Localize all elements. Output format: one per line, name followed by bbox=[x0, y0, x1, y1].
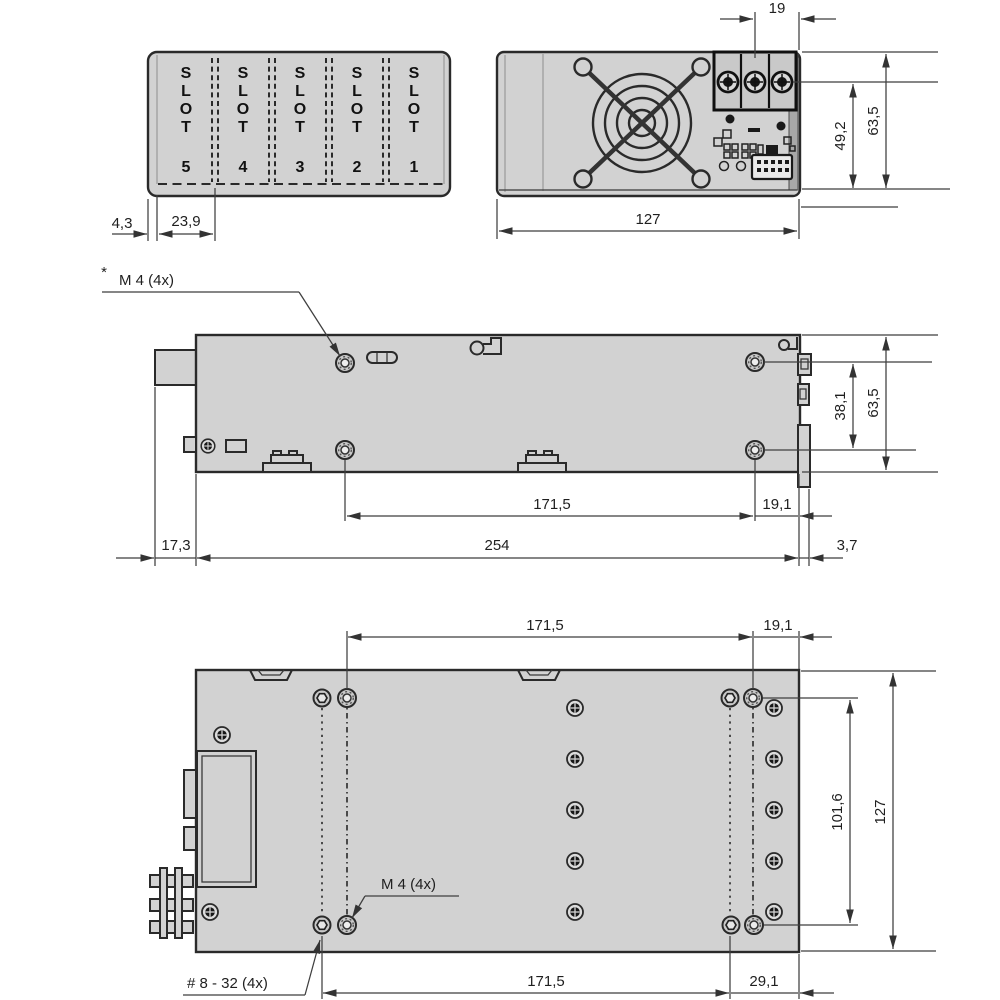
screw-icon bbox=[201, 439, 215, 453]
screw-icon bbox=[766, 751, 782, 767]
mounting-hole-hex bbox=[723, 917, 740, 934]
note-asterisk: * bbox=[101, 264, 107, 281]
terminal-screw-icon bbox=[772, 72, 792, 92]
screw-icon bbox=[567, 904, 583, 920]
screw-icon bbox=[567, 700, 583, 716]
slot-letter: L bbox=[238, 83, 248, 100]
slot-letter: T bbox=[409, 119, 419, 136]
mounting-hole-hex bbox=[314, 690, 331, 707]
mounting-foot bbox=[263, 451, 311, 472]
dim-hole-span: 171,5 bbox=[533, 496, 571, 513]
screw-icon bbox=[214, 727, 230, 743]
slot-letter: O bbox=[180, 101, 192, 118]
view-side: * M 4 (4x) 38,1 63,5 171,5 19,1 bbox=[101, 264, 938, 566]
dim-terminal-pitch: 19 bbox=[769, 0, 786, 17]
mounting-hole-m4 bbox=[336, 441, 354, 459]
screw-icon bbox=[567, 751, 583, 767]
fan-corner-ring bbox=[693, 59, 710, 76]
signal-connector-icon bbox=[752, 155, 792, 179]
dim-screw-height: 49,2 bbox=[832, 121, 849, 150]
note-m4-side: M 4 (4x) bbox=[119, 272, 174, 289]
mounting-hole-m4 bbox=[338, 689, 356, 707]
slot-letter: O bbox=[294, 101, 306, 118]
terminal-screw-icon bbox=[718, 72, 738, 92]
bottom-body-outline bbox=[196, 670, 799, 952]
left-edge-tab bbox=[184, 827, 196, 850]
dim-rear-offset: 3,7 bbox=[837, 537, 858, 554]
drawing-canvas: S L O T 5 S L O T 4 S L O T 3 S L O T 2 bbox=[0, 0, 1000, 1000]
slot-letter: T bbox=[352, 119, 362, 136]
dim-edge-offset: 4,3 bbox=[112, 215, 133, 232]
slot-letter: L bbox=[409, 83, 419, 100]
dim-hole-spacing-v: 101,6 bbox=[829, 793, 846, 831]
fan-corner-ring bbox=[575, 171, 592, 188]
slot-letter: S bbox=[181, 65, 192, 82]
mounting-hole-m4 bbox=[745, 916, 763, 934]
slot-letter: T bbox=[238, 119, 248, 136]
screw-icon bbox=[766, 853, 782, 869]
slot-letter: S bbox=[295, 65, 306, 82]
slot-number: 3 bbox=[296, 159, 305, 176]
screw-icon bbox=[567, 853, 583, 869]
slot-label-4: S L O T 4 bbox=[237, 65, 249, 176]
dim-hole-spacing-v: 38,1 bbox=[832, 391, 849, 420]
rear-thin-tab bbox=[798, 425, 810, 487]
mounting-hole-m4 bbox=[746, 441, 764, 459]
screw-icon bbox=[766, 904, 782, 920]
slot-letter: L bbox=[295, 83, 305, 100]
slot-letter: O bbox=[408, 101, 420, 118]
slot-number: 2 bbox=[353, 159, 362, 176]
terminal-screw-icon bbox=[745, 72, 765, 92]
mounting-foot bbox=[518, 451, 566, 472]
slot-letter: T bbox=[295, 119, 305, 136]
slot-label-2: S L O T 2 bbox=[351, 65, 363, 176]
slot-label-5: S L O T 5 bbox=[180, 65, 192, 176]
dim-hole-to-edge-bottom: 29,1 bbox=[749, 973, 778, 990]
slot-letter: S bbox=[238, 65, 249, 82]
screw-icon bbox=[766, 700, 782, 716]
view-front: 19 49,2 63,5 127 bbox=[497, 0, 950, 239]
dim-length: 254 bbox=[484, 537, 509, 554]
screw-icon bbox=[202, 904, 218, 920]
mounting-hole-hex bbox=[722, 690, 739, 707]
mounting-hole-m4 bbox=[338, 916, 356, 934]
dim-front-offset: 17,3 bbox=[161, 537, 190, 554]
fan-corner-ring bbox=[693, 171, 710, 188]
view-bottom: 171,5 19,1 101,6 127 M 4 (4x) # 8 - 32 (… bbox=[150, 617, 936, 999]
screw-icon bbox=[567, 802, 583, 818]
note-screw-bottom: # 8 - 32 (4x) bbox=[187, 975, 268, 992]
note-m4-bottom: M 4 (4x) bbox=[381, 876, 436, 893]
ac-inlet-prongs-icon bbox=[150, 868, 193, 938]
mounting-hole-m4 bbox=[744, 689, 762, 707]
left-edge-tab bbox=[184, 770, 196, 818]
dim-slot-pitch: 23,9 bbox=[171, 213, 200, 230]
dimension-drawing-page: S L O T 5 S L O T 4 S L O T 3 S L O T 2 bbox=[0, 0, 1000, 1000]
view-slot-top: S L O T 5 S L O T 4 S L O T 3 S L O T 2 bbox=[112, 52, 450, 241]
mounting-hole-hex bbox=[314, 917, 331, 934]
side-left-tab bbox=[184, 437, 196, 452]
dim-hole-span-top: 171,5 bbox=[526, 617, 564, 634]
led-icon bbox=[726, 115, 735, 124]
dim-hole-span-bottom: 171,5 bbox=[527, 973, 565, 990]
slot-letter: O bbox=[237, 101, 249, 118]
mounting-hole-m4 bbox=[336, 354, 354, 372]
slot-number: 5 bbox=[182, 159, 191, 176]
fan-corner-ring bbox=[575, 59, 592, 76]
slot-number: 4 bbox=[239, 159, 248, 176]
side-body-outline bbox=[196, 335, 800, 472]
slot-letter: L bbox=[181, 83, 191, 100]
dim-hole-to-rear: 19,1 bbox=[762, 496, 791, 513]
slot-label-1: S L O T 1 bbox=[408, 65, 420, 176]
dim-front-height: 63,5 bbox=[865, 106, 882, 135]
terminal-block bbox=[714, 52, 796, 110]
mounting-hole-m4 bbox=[746, 353, 764, 371]
dim-side-height: 63,5 bbox=[865, 388, 882, 417]
slot-letter: S bbox=[352, 65, 363, 82]
slot-letter: O bbox=[351, 101, 363, 118]
screw-icon bbox=[766, 802, 782, 818]
slot-letter: L bbox=[352, 83, 362, 100]
slot-number: 1 bbox=[410, 159, 419, 176]
slot-letter: T bbox=[181, 119, 191, 136]
led-icon bbox=[777, 122, 786, 131]
slot-letter: S bbox=[409, 65, 420, 82]
dim-front-width: 127 bbox=[635, 211, 660, 228]
dim-bottom-width: 127 bbox=[872, 799, 889, 824]
slot-label-3: S L O T 3 bbox=[294, 65, 306, 176]
dim-hole-to-edge-top: 19,1 bbox=[763, 617, 792, 634]
side-front-tab bbox=[155, 350, 196, 385]
